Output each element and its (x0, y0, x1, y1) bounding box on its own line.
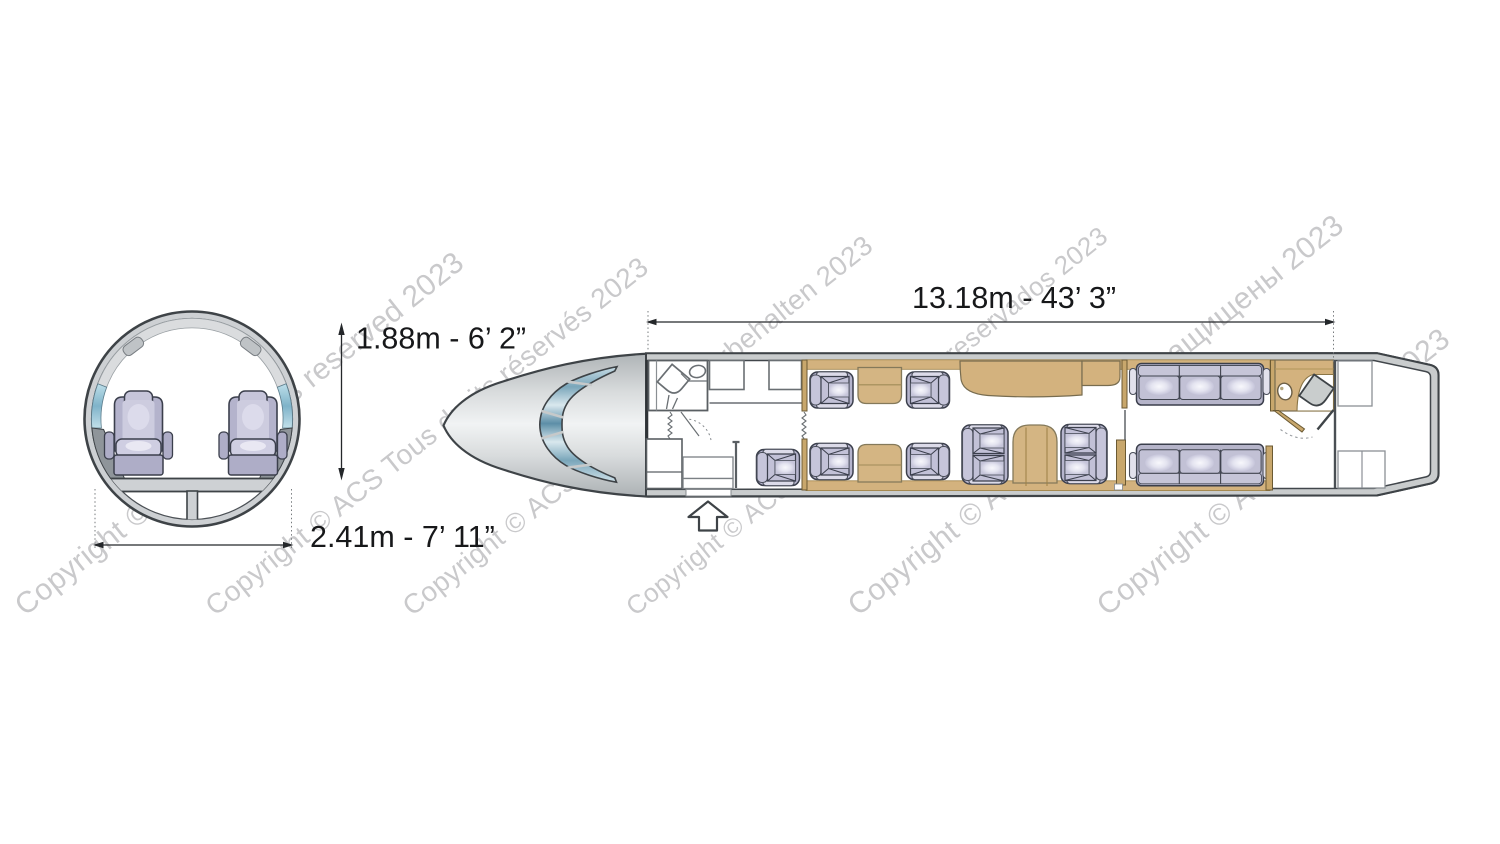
svg-text:1.88m - 6’ 2”: 1.88m - 6’ 2” (356, 322, 526, 356)
svg-text:13.18m - 43’ 3”: 13.18m - 43’ 3” (912, 281, 1116, 315)
svg-text:2.41m - 7’ 11”: 2.41m - 7’ 11” (310, 520, 495, 554)
